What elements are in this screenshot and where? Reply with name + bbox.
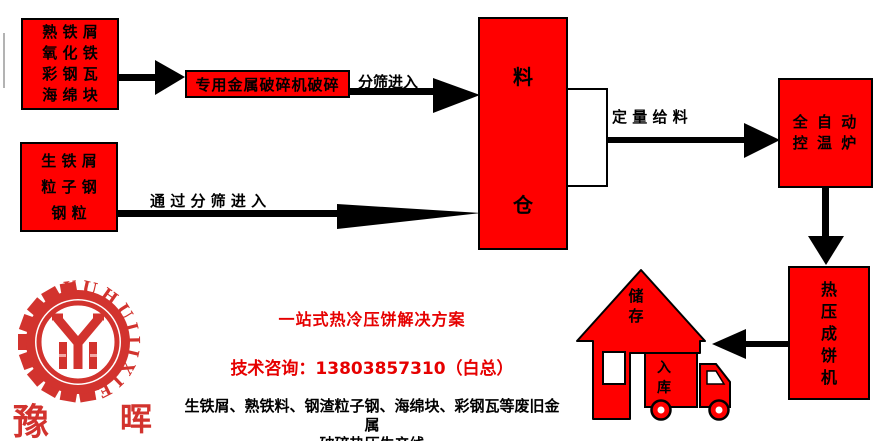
left-edge-artifact-line bbox=[3, 33, 5, 88]
silo-char-2: 仓 bbox=[513, 189, 533, 218]
material-line: 氧 化 铁 bbox=[42, 43, 97, 64]
press-char: 热 bbox=[821, 280, 837, 299]
arrow-press-to-storage bbox=[712, 329, 789, 359]
house-door bbox=[603, 352, 625, 384]
description-line-1: 生铁屑、熟铁料、钢渣粒子钢、海绵块、彩钢瓦等废旧金属 bbox=[183, 397, 561, 435]
press-box: 热 压 成 饼 机 bbox=[788, 266, 870, 400]
logo-char-hui: 晖 bbox=[120, 400, 152, 438]
furnace-line-1: 全 自 动 bbox=[793, 112, 858, 133]
arrow-silo-to-furnace bbox=[605, 123, 780, 158]
silo-box: 料 仓 bbox=[478, 17, 568, 250]
silo-char-1: 料 bbox=[513, 61, 533, 90]
crusher-label: 专用金属破碎机破碎 bbox=[195, 74, 339, 95]
quantitative-feeding-label: 定 量 给 料 bbox=[612, 106, 688, 127]
truck-label-char-1: 入 bbox=[657, 360, 671, 376]
warehouse-truck-icon: 入 库 bbox=[645, 353, 730, 420]
material-line: 粒 子 钢 bbox=[41, 174, 96, 200]
footer-text-block: 一站式热冷压饼解决方案 技术咨询：13803857310（白总） 生铁屑、熟铁料… bbox=[183, 306, 561, 441]
material-line: 海 绵 块 bbox=[42, 85, 97, 106]
description-line-2: 破碎热压生产线 bbox=[183, 435, 561, 441]
crusher-box: 专用金属破碎机破碎 bbox=[185, 70, 350, 98]
material-line: 熟 铁 屑 bbox=[42, 22, 97, 43]
source-materials-box-bottom: 生 铁 屑 粒 子 钢 钢 粒 bbox=[20, 142, 118, 232]
through-sieve-entry-label: 通 过 分 筛 进 入 bbox=[150, 190, 266, 211]
sieve-entry-label: 分筛进入 bbox=[358, 71, 418, 92]
truck-cargo-box bbox=[645, 353, 697, 407]
monogram-accent-mark bbox=[59, 354, 66, 357]
furnace-line-2: 控 温 炉 bbox=[793, 133, 858, 154]
yuhui-company-logo: YUHUIJIXIE 豫 晖 bbox=[5, 266, 175, 441]
furnace-box: 全 自 动 控 温 炉 bbox=[778, 78, 873, 188]
source-materials-box-top: 熟 铁 屑 氧 化 铁 彩 钢 瓦 海 绵 块 bbox=[21, 18, 119, 110]
silo-outlet-connector bbox=[566, 88, 608, 187]
press-char: 压 bbox=[821, 302, 837, 321]
contact-phone-text: 技术咨询：13803857310（白总） bbox=[183, 354, 561, 379]
material-line: 彩 钢 瓦 bbox=[42, 64, 97, 85]
slogan-text: 一站式热冷压饼解决方案 bbox=[183, 306, 561, 330]
press-char: 饼 bbox=[821, 346, 837, 365]
truck-label-char-2: 库 bbox=[657, 379, 671, 396]
material-line: 钢 粒 bbox=[51, 200, 86, 226]
description-text: 生铁屑、熟铁料、钢渣粒子钢、海绵块、彩钢瓦等废旧金属 破碎热压生产线 bbox=[183, 397, 561, 441]
house-label-char-1: 储 bbox=[628, 287, 643, 305]
logo-char-yu: 豫 bbox=[13, 401, 49, 441]
press-char: 机 bbox=[821, 368, 837, 387]
flowchart-canvas: 储 存 入 库 熟 铁 屑 氧 化 铁 彩 钢 瓦 海 绵 块 专用金属破碎机破… bbox=[0, 0, 892, 441]
press-char: 成 bbox=[821, 324, 837, 343]
material-line: 生 铁 屑 bbox=[41, 148, 96, 174]
house-label-char-2: 存 bbox=[628, 307, 643, 325]
arrow-furnace-to-press bbox=[808, 186, 844, 265]
monogram-accent-mark bbox=[90, 354, 97, 357]
arrow-top-source-to-crusher bbox=[119, 60, 185, 95]
